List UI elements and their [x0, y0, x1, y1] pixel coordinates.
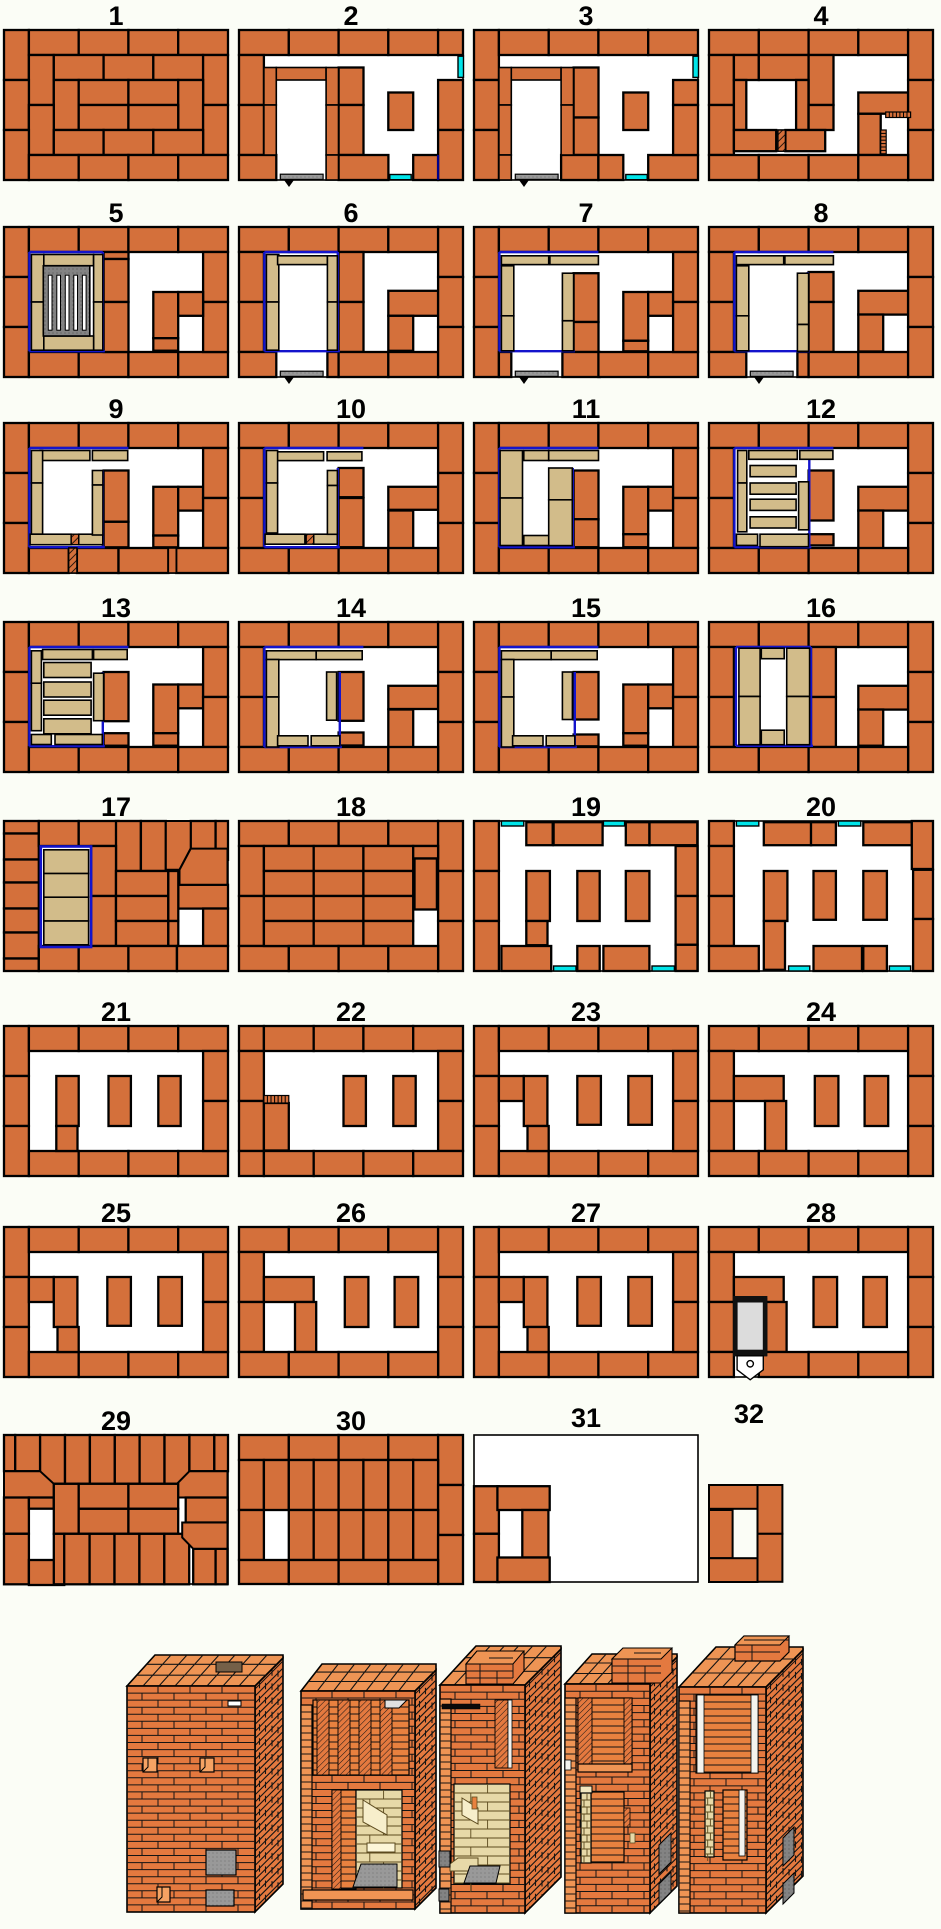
svg-text:30: 30 — [336, 1406, 366, 1436]
svg-text:3: 3 — [578, 1, 593, 31]
svg-text:24: 24 — [806, 997, 836, 1027]
svg-text:27: 27 — [571, 1198, 601, 1228]
svg-text:7: 7 — [578, 198, 593, 228]
svg-text:10: 10 — [336, 394, 366, 424]
svg-text:14: 14 — [336, 593, 366, 623]
svg-text:6: 6 — [343, 198, 358, 228]
svg-text:32: 32 — [734, 1399, 764, 1429]
svg-text:15: 15 — [571, 593, 601, 623]
svg-text:18: 18 — [336, 792, 366, 822]
svg-text:23: 23 — [571, 997, 601, 1027]
svg-text:11: 11 — [572, 394, 601, 424]
svg-text:13: 13 — [101, 593, 131, 623]
svg-text:29: 29 — [101, 1406, 131, 1436]
svg-text:31: 31 — [571, 1403, 601, 1433]
svg-text:22: 22 — [336, 997, 366, 1027]
svg-text:8: 8 — [813, 198, 828, 228]
svg-text:5: 5 — [108, 198, 123, 228]
svg-text:21: 21 — [101, 997, 131, 1027]
svg-text:28: 28 — [806, 1198, 836, 1228]
svg-text:4: 4 — [813, 1, 828, 31]
svg-text:20: 20 — [806, 792, 836, 822]
svg-text:25: 25 — [101, 1198, 131, 1228]
svg-text:1: 1 — [108, 1, 123, 31]
svg-text:19: 19 — [571, 792, 601, 822]
svg-text:2: 2 — [343, 1, 358, 31]
svg-text:9: 9 — [108, 394, 123, 424]
svg-text:16: 16 — [806, 593, 836, 623]
svg-text:12: 12 — [806, 394, 836, 424]
svg-text:17: 17 — [101, 792, 131, 822]
svg-text:26: 26 — [336, 1198, 366, 1228]
